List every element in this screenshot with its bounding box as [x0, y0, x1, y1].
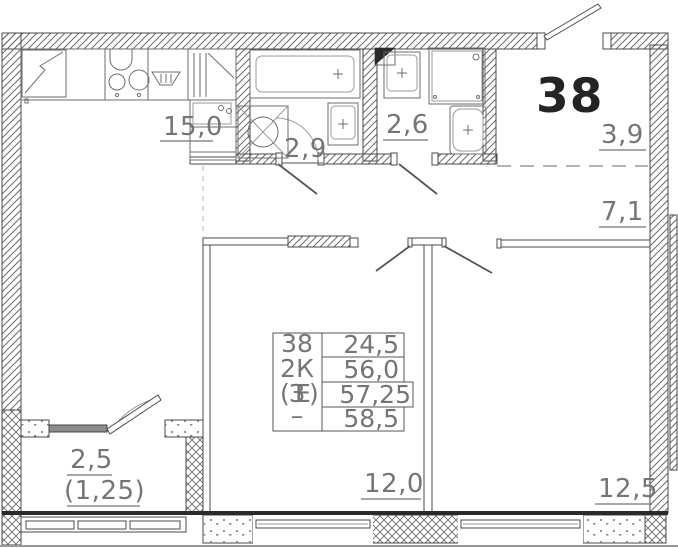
room-label-bedroom-1: 12,0	[361, 469, 424, 499]
floor-plan-page: 15,0 2,9 2,6 3,9 7,1 12,0 12,5 2,5	[0, 0, 678, 548]
wall-bottom-inner-face	[2, 511, 668, 515]
fridge-icon	[22, 50, 66, 103]
stamp-value-total-area: 58,5	[343, 404, 399, 433]
wc-area-label: 2,6	[386, 110, 429, 140]
shower-icon	[429, 48, 485, 104]
entrance-door	[537, 4, 611, 49]
plot-bottom-edge	[0, 545, 678, 547]
balcony-glazing-panel	[26, 521, 74, 529]
kitchen-living-area-label: 15,0	[163, 112, 223, 142]
entrance-door-leaf	[544, 4, 601, 40]
balcony-lintel-left	[21, 420, 49, 437]
vent-shaft-icon	[375, 48, 395, 65]
bedroom1-door-leaf	[376, 246, 410, 271]
hallway-area-label: 7,1	[601, 197, 644, 227]
bathroom-area-label: 2,9	[284, 134, 327, 164]
room-labels: 15,0 2,9 2,6 3,9 7,1 12,0 12,5 2,5	[64, 69, 658, 506]
zone-dashed-lines	[203, 166, 648, 238]
wall-bedroom-doors-header	[410, 238, 444, 245]
washbasin-icon	[384, 52, 420, 98]
door-jamb	[408, 238, 412, 247]
door-jamb	[442, 238, 446, 247]
kitchen-fixtures	[21, 49, 236, 160]
balcony-wall-right	[186, 437, 203, 513]
room-label-bathroom: 2,9	[281, 134, 327, 164]
door-jamb	[432, 153, 438, 165]
balcony-coefficient-area-label: (1,25)	[64, 476, 145, 506]
washbasin-icon	[328, 103, 358, 145]
balcony-door-leaf	[107, 395, 161, 434]
wall-bathroom-mid	[363, 49, 377, 161]
wall-between-bedrooms	[424, 245, 432, 513]
wall-bathroom-bottom-b	[324, 154, 391, 164]
wall-living-partition	[203, 238, 288, 245]
room-label-hallway: 7,1	[599, 197, 646, 227]
bedroom-1-area-label: 12,0	[364, 469, 424, 499]
room-label-bedroom-2: 12,5	[595, 474, 658, 504]
tall-cabinet-icon	[188, 49, 236, 100]
door-jamb	[391, 153, 397, 165]
balcony-glazing-panel	[130, 521, 180, 529]
door-jamb	[350, 238, 358, 247]
wall-left	[2, 33, 21, 410]
door-jamb	[603, 33, 611, 49]
room-label-entry-hall: 3,9	[599, 120, 646, 150]
wall-top	[2, 33, 537, 49]
room-label-wc: 2,6	[383, 110, 429, 140]
door-jamb	[497, 239, 501, 248]
balcony-lintel-right	[165, 420, 203, 437]
room-label-balcony: 2,5 (1,25)	[64, 445, 145, 506]
wall-bedroom1-left	[203, 238, 210, 513]
wall-wc-bottom	[438, 154, 497, 164]
hood-icon	[152, 72, 180, 85]
bathroom-door-leaf	[278, 164, 317, 194]
apartment-number-label: 38	[536, 69, 603, 124]
interior-partitions	[203, 236, 650, 513]
stamp-dash: –	[291, 401, 304, 430]
balcony-area-label: 2,5	[70, 445, 113, 475]
kitchen-counter	[21, 49, 236, 100]
cooktop-icon	[109, 70, 149, 97]
lintel-block-texture	[583, 515, 645, 543]
wall-hallway-bedroom2	[497, 240, 650, 247]
wall-right-outer-strip	[670, 215, 677, 470]
wall-partition-hatched-block	[288, 236, 350, 247]
bathtub-icon	[250, 50, 360, 98]
room-label-kitchen-living: 15,0	[160, 112, 223, 142]
wc-door-leaf	[399, 164, 437, 194]
toilet-icon	[450, 106, 486, 154]
sink-icon	[110, 49, 132, 70]
window-opening-2	[458, 514, 583, 544]
lintel-block-texture	[203, 515, 253, 543]
window-opening-1	[253, 514, 373, 544]
entry-hall-area-label: 3,9	[601, 120, 644, 150]
floor-plan: 15,0 2,9 2,6 3,9 7,1 12,0 12,5 2,5	[0, 0, 678, 548]
wall-bathroom-bottom-a	[236, 154, 276, 164]
balcony-window	[49, 425, 107, 432]
balcony-wall-left	[2, 410, 21, 545]
area-stamp-table: 38 2К (ЗЕ) – 24,5 56,0 57,25 58,5	[273, 329, 413, 433]
balcony-glazing-panel	[78, 521, 126, 529]
bedroom-2-area-label: 12,5	[598, 474, 658, 504]
wall-right	[650, 45, 668, 513]
bedroom2-door-leaf	[444, 246, 492, 273]
door-jamb	[537, 33, 545, 49]
